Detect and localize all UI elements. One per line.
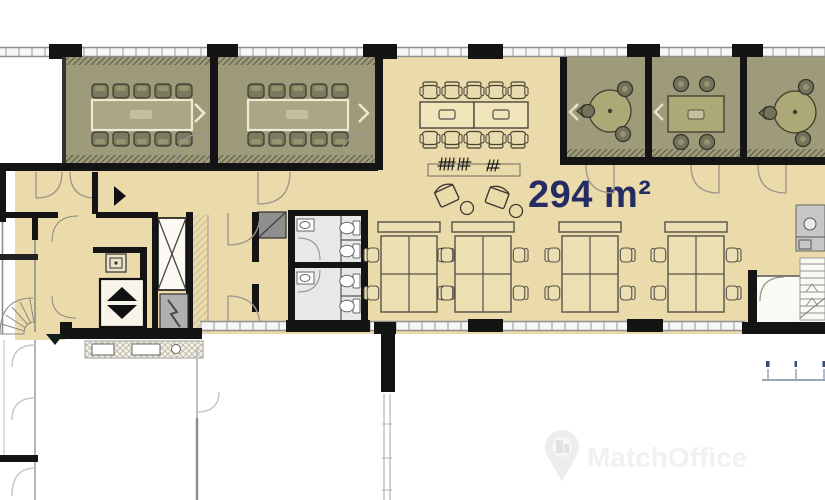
exterior-wall-top: [0, 44, 825, 59]
floor-plan-screenshot: 294 m²: [0, 0, 825, 500]
kitchenette: [796, 205, 825, 251]
utility-room: [160, 294, 188, 332]
meeting-room-2: [218, 57, 375, 163]
toilet-icon: [340, 299, 360, 313]
washbasin: [297, 219, 314, 231]
matchoffice-watermark: MatchOffice: [545, 430, 747, 482]
toilet-icon: [340, 221, 360, 235]
toilet-icon: [340, 244, 360, 258]
open-plan-table-group: [420, 82, 528, 148]
shaft-hatch: [193, 215, 208, 332]
conference-table: [248, 100, 348, 130]
watermark-text: MatchOffice: [587, 442, 747, 473]
washbasin: [297, 272, 314, 284]
elevator: [100, 279, 144, 327]
kitchen-counter: [85, 341, 203, 358]
meeting-room-1: [62, 57, 210, 167]
service-box: [106, 254, 126, 272]
staircase-right: [800, 258, 825, 320]
lower-floor-outline: [0, 340, 392, 500]
conference-table: [92, 100, 192, 130]
cleaning-closet: [258, 212, 286, 238]
scale-bar: [762, 361, 825, 380]
elevator-shaft: [158, 218, 186, 290]
floor-plan-svg: 294 m²: [0, 0, 825, 500]
toilet-icon: [340, 274, 360, 288]
location-pin-building-icon: [545, 430, 579, 482]
